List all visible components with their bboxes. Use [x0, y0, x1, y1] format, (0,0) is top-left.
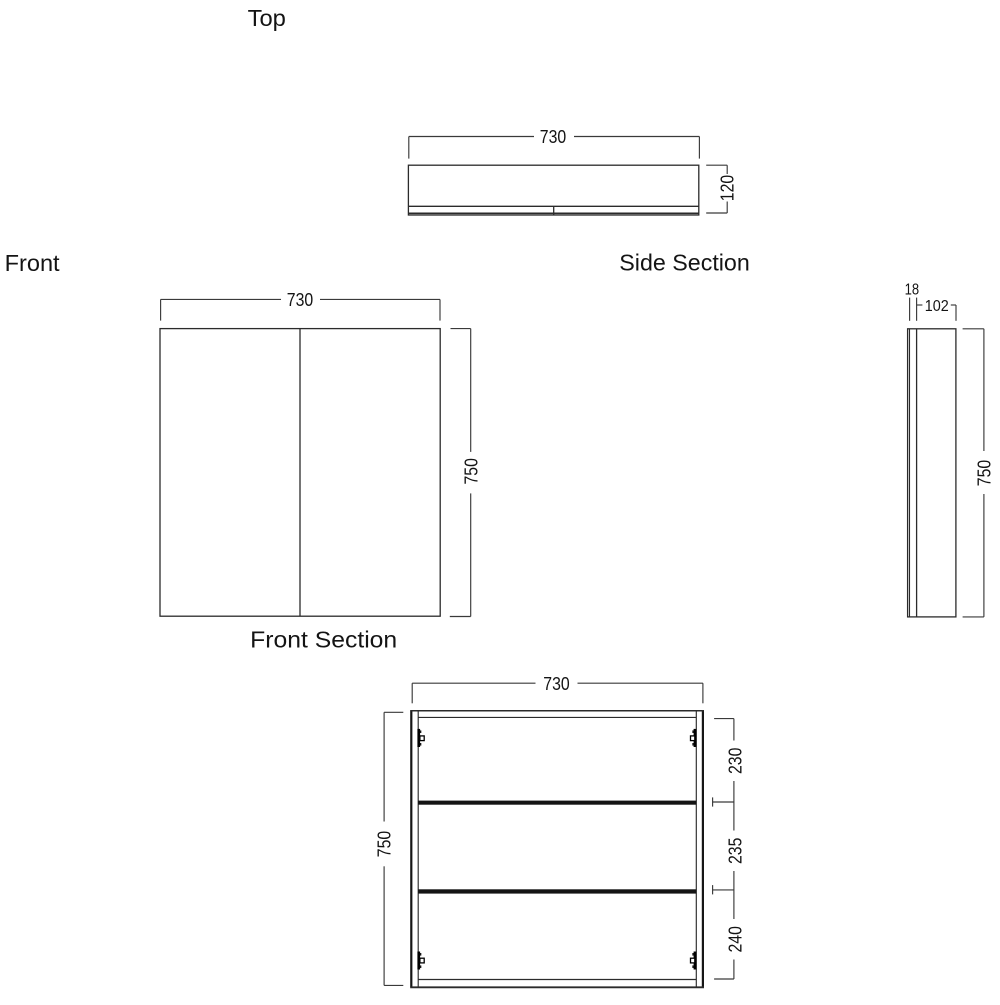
svg-text:120: 120	[717, 175, 737, 201]
svg-text:Front Section: Front Section	[250, 627, 397, 653]
svg-text:750: 750	[375, 831, 395, 857]
svg-text:730: 730	[287, 290, 313, 310]
svg-text:Front: Front	[5, 250, 61, 276]
svg-text:102: 102	[925, 298, 949, 315]
svg-text:Side Section: Side Section	[619, 250, 750, 276]
svg-text:730: 730	[540, 127, 566, 147]
svg-text:750: 750	[975, 460, 995, 486]
svg-text:230: 230	[726, 748, 746, 774]
svg-text:730: 730	[543, 674, 569, 694]
svg-text:240: 240	[726, 926, 746, 952]
svg-text:Top: Top	[248, 5, 286, 31]
svg-text:750: 750	[462, 458, 482, 484]
svg-text:235: 235	[726, 838, 746, 864]
svg-text:18: 18	[905, 282, 920, 299]
